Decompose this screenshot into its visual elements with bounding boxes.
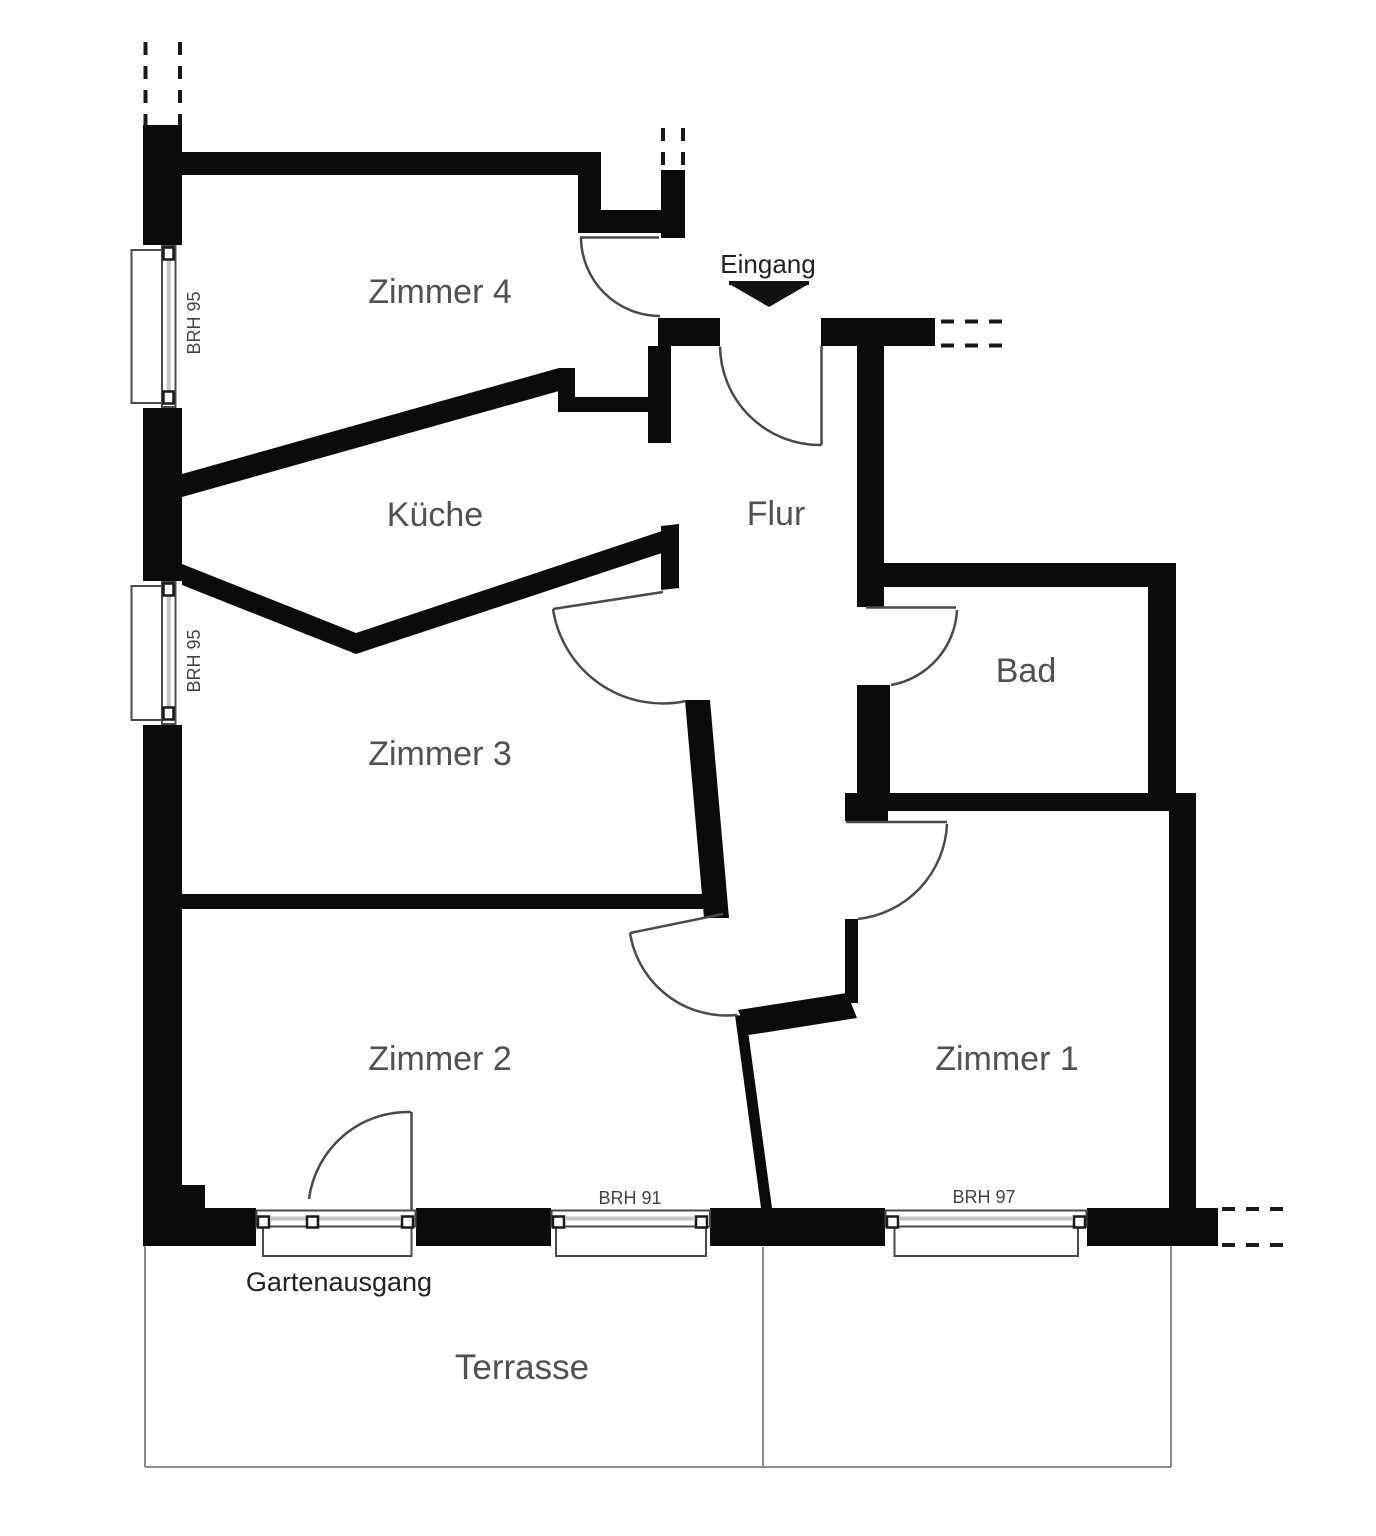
svg-text:Zimmer 4: Zimmer 4 — [368, 273, 512, 311]
svg-text:Gartenausgang: Gartenausgang — [246, 1267, 432, 1297]
svg-text:Eingang: Eingang — [720, 249, 815, 279]
svg-text:BRH 95: BRH 95 — [184, 291, 204, 354]
svg-text:BRH 91: BRH 91 — [598, 1188, 661, 1208]
svg-text:Flur: Flur — [747, 495, 806, 533]
svg-text:Zimmer 1: Zimmer 1 — [935, 1040, 1079, 1078]
svg-text:Terrasse: Terrasse — [455, 1348, 589, 1387]
svg-text:BRH 97: BRH 97 — [952, 1187, 1015, 1207]
svg-text:BRH 95: BRH 95 — [184, 629, 204, 692]
svg-text:Bad: Bad — [996, 652, 1057, 690]
svg-text:Küche: Küche — [387, 496, 483, 534]
svg-text:Zimmer 2: Zimmer 2 — [368, 1040, 512, 1078]
svg-text:Zimmer 3: Zimmer 3 — [368, 735, 512, 773]
